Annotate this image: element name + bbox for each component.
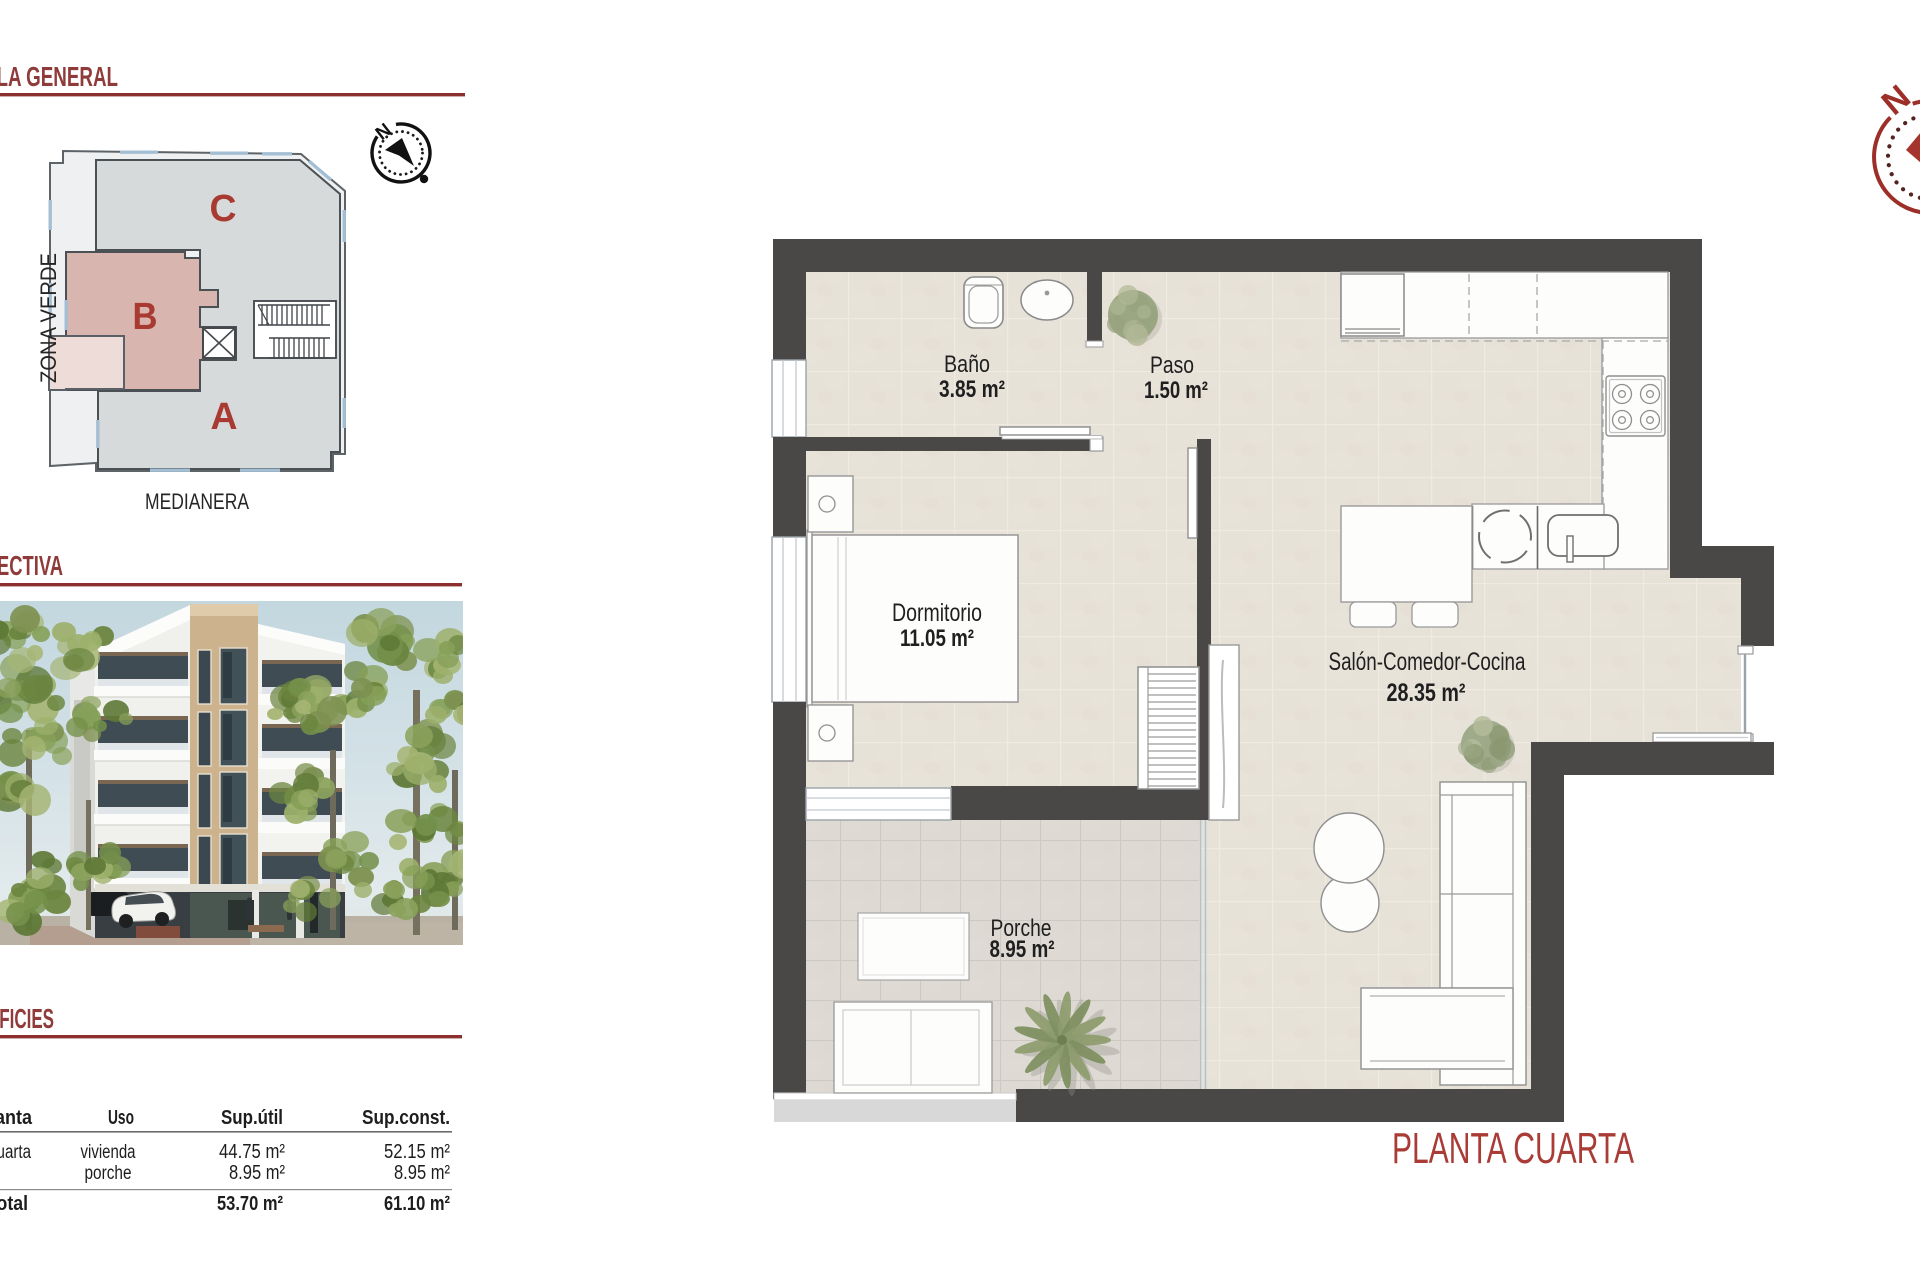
svg-text:Salón-Comedor-Cocina: Salón-Comedor-Cocina <box>1329 648 1526 676</box>
svg-text:8.95 m²: 8.95 m² <box>229 1162 285 1184</box>
svg-text:PLANTA CUARTA: PLANTA CUARTA <box>1392 1124 1634 1173</box>
svg-text:8.95 m²: 8.95 m² <box>394 1162 450 1184</box>
svg-text:A: A <box>211 396 238 438</box>
svg-text:ELA GENERAL: ELA GENERAL <box>0 61 118 92</box>
svg-text:Planta: Planta <box>0 1107 33 1129</box>
svg-text:Total: Total <box>0 1193 28 1215</box>
svg-text:Paso: Paso <box>1150 352 1194 379</box>
svg-text:RFICIES: RFICIES <box>0 1003 54 1034</box>
svg-text:52.15 m²: 52.15 m² <box>384 1141 450 1163</box>
svg-text:44.75 m²: 44.75 m² <box>219 1141 285 1163</box>
svg-text:ZONA VERDE: ZONA VERDE <box>36 253 61 383</box>
svg-text:C: C <box>210 188 237 230</box>
svg-text:Sup.const.: Sup.const. <box>362 1107 450 1129</box>
svg-text:ECTIVA: ECTIVA <box>0 550 63 581</box>
svg-text:53.70 m²: 53.70 m² <box>217 1193 283 1215</box>
svg-text:3.85 m²: 3.85 m² <box>939 376 1005 403</box>
svg-text:B: B <box>133 296 158 338</box>
svg-text:1.50 m²: 1.50 m² <box>1144 377 1208 404</box>
svg-text:8.95 m²: 8.95 m² <box>990 936 1055 963</box>
svg-text:Baño: Baño <box>944 351 990 378</box>
svg-text:11.05 m²: 11.05 m² <box>900 625 974 652</box>
svg-text:28.35 m²: 28.35 m² <box>1387 679 1466 707</box>
svg-text:Dormitorio: Dormitorio <box>892 599 982 627</box>
svg-text:cuarta: cuarta <box>0 1142 31 1163</box>
svg-text:MEDIANERA: MEDIANERA <box>145 489 249 514</box>
svg-text:Uso: Uso <box>108 1107 134 1129</box>
svg-text:porche: porche <box>85 1163 132 1184</box>
svg-text:61.10 m²: 61.10 m² <box>384 1193 450 1215</box>
svg-text:Sup.útil: Sup.útil <box>221 1107 283 1129</box>
svg-text:vivienda: vivienda <box>81 1142 136 1163</box>
